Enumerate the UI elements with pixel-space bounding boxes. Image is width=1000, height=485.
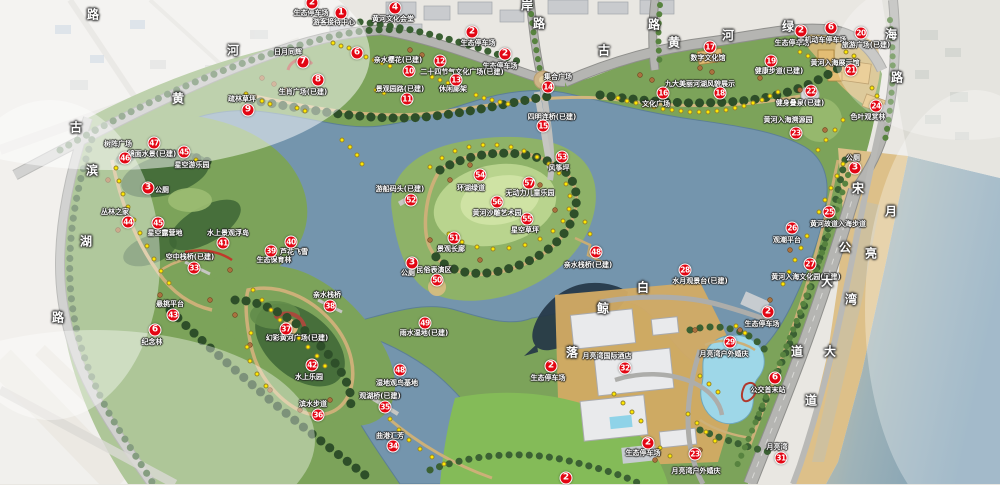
map-marker-29[interactable]: 29: [724, 336, 737, 349]
map-marker-33[interactable]: 33: [188, 262, 201, 275]
poi-dot: [833, 128, 838, 133]
map-label: 生肖广场(已建): [279, 87, 327, 97]
map-marker-3[interactable]: 3: [406, 257, 419, 270]
poi-dot: [114, 166, 119, 171]
map-marker-57[interactable]: 57: [523, 177, 536, 190]
map-marker-23[interactable]: 23: [790, 127, 803, 140]
poi-dot: [490, 98, 495, 103]
poi-dot: [639, 419, 644, 424]
poi-dot: [268, 102, 273, 107]
road-name-char: 白: [637, 279, 649, 296]
road-name-char: 河: [227, 42, 239, 59]
map-label: 生态停车场: [461, 38, 496, 48]
poi-dot: [713, 439, 718, 444]
map-marker-3[interactable]: 3: [849, 162, 862, 175]
poi-dot: [564, 182, 569, 187]
map-marker-37[interactable]: 37: [280, 323, 293, 336]
poi-dot: [823, 198, 828, 203]
map-label: 月亮湾户外婚庆: [672, 466, 721, 476]
poi-dot: [475, 245, 480, 250]
map-marker-2[interactable]: 2: [466, 26, 479, 39]
map-marker-49[interactable]: 49: [419, 317, 432, 330]
road-name-char: 亮: [865, 245, 877, 262]
map-label: 景观园路(已建): [376, 84, 424, 94]
park-master-plan-map: 生态停车场游客接待中心黄河文化会堂生态停车场生态停车场日月同辉生肖广场(已建)疏…: [0, 0, 1000, 484]
poi-dot: [743, 331, 748, 336]
poi-dot: [117, 179, 122, 184]
road-name-char: 公: [839, 239, 851, 256]
poi-dot: [360, 162, 365, 167]
poi-dot: [264, 384, 269, 389]
poi-dot: [535, 155, 540, 160]
map-marker-40[interactable]: 40: [285, 236, 298, 249]
map-annotation-overlay: 生态停车场游客接待中心黄河文化会堂生态停车场生态停车场日月同辉生肖广场(已建)疏…: [0, 0, 1000, 484]
map-label: 非机动车停车场: [798, 35, 847, 45]
map-marker-28[interactable]: 28: [679, 264, 692, 277]
poi-dot: [260, 298, 265, 303]
poi-dot: [768, 94, 773, 99]
map-marker-13[interactable]: 13: [450, 74, 463, 87]
map-marker-42[interactable]: 42: [306, 359, 319, 372]
map-label: 月亮湾: [767, 442, 788, 452]
map-marker-24[interactable]: 24: [870, 100, 883, 113]
poi-dot: [331, 41, 336, 46]
road-name-char: 海: [885, 26, 897, 43]
road-name-char: 鲸: [597, 300, 609, 317]
poi-dot: [751, 101, 756, 106]
road-name-char: 路: [87, 6, 99, 23]
map-marker-3[interactable]: 3: [142, 182, 155, 195]
map-label: 生态停车场: [745, 319, 780, 329]
poi-dot: [561, 219, 566, 224]
poi-dot: [841, 162, 846, 167]
map-marker-1[interactable]: 1: [335, 7, 348, 20]
road-name-char: 古: [70, 119, 82, 136]
map-marker-8[interactable]: 8: [312, 74, 325, 87]
poi-dot: [303, 109, 308, 114]
poi-dot: [733, 106, 738, 111]
map-marker-6[interactable]: 6: [825, 22, 838, 35]
poi-dot: [716, 390, 721, 395]
road-name-char: 古: [598, 42, 610, 59]
map-marker-2[interactable]: 2: [642, 437, 655, 450]
poi-dot: [407, 438, 412, 443]
poi-dot: [670, 108, 675, 113]
poi-dot: [245, 345, 250, 350]
map-label: 黄河文化会堂: [372, 14, 414, 24]
map-label: 公交首末站: [751, 385, 786, 395]
map-label: 亲水栈桥: [313, 290, 341, 300]
map-marker-46[interactable]: 46: [119, 152, 132, 165]
poi-dot: [817, 210, 822, 215]
poi-dot: [707, 382, 712, 387]
road-name-char: 绿: [782, 18, 794, 35]
poi-dot: [306, 345, 311, 350]
poi-dot: [567, 207, 572, 212]
map-marker-10[interactable]: 10: [403, 65, 416, 78]
road-name-char: 道: [791, 343, 803, 360]
poi-dot: [481, 143, 486, 148]
poi-dot: [523, 243, 528, 248]
poi-dot: [612, 392, 617, 397]
road-name-char: 宋: [852, 180, 864, 197]
map-marker-6[interactable]: 6: [769, 372, 782, 385]
map-label: 二十四节气文化广场(已建): [420, 67, 503, 77]
map-label: 悬挑平台: [156, 299, 184, 309]
map-label: 星空游乐园: [175, 160, 210, 170]
map-marker-45[interactable]: 45: [178, 146, 191, 159]
map-marker-20[interactable]: 20: [855, 27, 868, 40]
poi-dot: [742, 104, 747, 109]
map-label: 健康步道(已建): [755, 66, 803, 76]
poi-dot: [121, 192, 126, 197]
map-label: 黄河沙雕艺术园: [473, 208, 522, 218]
poi-dot: [698, 374, 703, 379]
poi-dot: [364, 55, 369, 60]
poi-dot: [734, 324, 739, 329]
poi-dot: [159, 269, 164, 274]
map-marker-32[interactable]: 32: [619, 362, 632, 375]
map-marker-6[interactable]: 6: [351, 47, 364, 60]
poi-dot: [482, 96, 487, 101]
map-label: 树阵广场: [104, 139, 132, 149]
map-marker-27[interactable]: 27: [804, 258, 817, 271]
map-marker-55[interactable]: 55: [521, 213, 534, 226]
map-label: 幻彩黄河广场(已建): [266, 333, 328, 343]
poi-dot: [249, 331, 254, 336]
poi-dot: [315, 354, 320, 359]
map-label: 星空露营地: [148, 228, 183, 238]
poi-dot: [260, 99, 265, 104]
map-label: 星空草坪: [511, 225, 539, 235]
map-marker-52[interactable]: 52: [405, 194, 418, 207]
poi-dot: [498, 100, 503, 105]
poi-dot: [506, 102, 511, 107]
map-label: 风筝坪: [549, 163, 570, 173]
map-label: 空中栈桥(已建): [166, 252, 214, 262]
road-name-char: 黄: [668, 34, 680, 51]
map-marker-4[interactable]: 4: [389, 2, 402, 15]
poi-dot: [491, 247, 496, 252]
map-label: 观潮平台: [773, 235, 801, 245]
map-marker-18[interactable]: 18: [714, 87, 727, 100]
map-marker-6[interactable]: 6: [149, 324, 162, 337]
map-label: 疏林草坪: [228, 94, 256, 104]
map-marker-51[interactable]: 51: [448, 232, 461, 245]
poi-dot: [474, 93, 479, 98]
poi-dot: [495, 143, 500, 148]
poi-dot: [844, 50, 849, 55]
map-marker-45[interactable]: 45: [152, 217, 165, 230]
map-marker-38[interactable]: 38: [324, 300, 337, 313]
map-label: 景观长廊: [437, 244, 465, 254]
map-label: 公厕: [155, 185, 169, 195]
poi-dot: [438, 78, 443, 83]
map-label: 水上景观浮岛: [207, 228, 249, 238]
poi-dot: [428, 165, 433, 170]
map-marker-12[interactable]: 12: [434, 55, 447, 68]
map-marker-14[interactable]: 14: [542, 81, 555, 94]
poi-dot: [278, 318, 283, 323]
map-label: 水上乐园: [295, 372, 323, 382]
map-marker-2[interactable]: 2: [795, 25, 808, 38]
poi-dot: [776, 90, 781, 95]
map-marker-19[interactable]: 19: [765, 55, 778, 68]
poi-dot: [697, 110, 702, 115]
poi-dot: [715, 109, 720, 114]
poi-dot: [269, 308, 274, 313]
road-name-char: 湖: [80, 233, 92, 250]
poi-dot: [509, 145, 514, 150]
poi-dot: [695, 421, 700, 426]
map-label: 文化广场: [642, 99, 670, 109]
map-marker-17[interactable]: 17: [704, 41, 717, 54]
map-marker-56[interactable]: 56: [491, 196, 504, 209]
road-name-char: 路: [648, 16, 660, 33]
poi-dot: [522, 149, 527, 154]
map-marker-50[interactable]: 50: [431, 274, 444, 287]
road-name-char: 滨: [86, 162, 98, 179]
road-name-char: 路: [52, 309, 64, 326]
poi-dot: [824, 138, 829, 143]
poi-dot: [348, 145, 353, 150]
map-label: 游客接待中心: [313, 17, 355, 27]
map-marker-47[interactable]: 47: [148, 137, 161, 150]
poi-dot: [706, 110, 711, 115]
poi-dot: [568, 194, 573, 199]
poi-dot: [588, 232, 593, 237]
poi-dot: [248, 359, 253, 364]
map-marker-22[interactable]: 22: [805, 85, 818, 98]
poi-dot: [816, 148, 821, 153]
map-label: 生态停车场: [531, 373, 566, 383]
map-marker-7[interactable]: 7: [297, 56, 310, 69]
poi-dot: [583, 220, 588, 225]
map-marker-41[interactable]: 41: [217, 237, 230, 250]
map-label: 亲水栈桥(已建): [564, 260, 612, 270]
poi-dot: [634, 101, 639, 106]
poi-dot: [340, 138, 345, 143]
poi-dot: [781, 282, 786, 287]
map-label: 月亮湾户外婚庆: [700, 349, 749, 359]
map-marker-9[interactable]: 9: [242, 104, 255, 117]
map-marker-2[interactable]: 2: [545, 360, 558, 373]
map-label: 数字文化馆: [691, 53, 726, 63]
road-name-char: 河: [722, 27, 734, 44]
map-marker-39[interactable]: 39: [265, 245, 278, 258]
map-marker-34[interactable]: 34: [387, 440, 400, 453]
road-name-char: 路: [533, 15, 545, 32]
road-name-char: 道: [805, 392, 817, 409]
map-marker-43[interactable]: 43: [167, 309, 180, 322]
map-marker-48[interactable]: 48: [590, 246, 603, 259]
map-marker-26[interactable]: 26: [786, 222, 799, 235]
poi-dot: [870, 86, 875, 91]
map-marker-16[interactable]: 16: [657, 87, 670, 100]
poi-dot: [167, 281, 172, 286]
poi-dot: [625, 99, 630, 104]
poi-dot: [760, 98, 765, 103]
poi-dot: [339, 44, 344, 49]
poi-dot: [388, 417, 393, 422]
map-marker-11[interactable]: 11: [401, 93, 414, 106]
road-name-char: 路: [891, 69, 903, 86]
map-label: 色叶观赏林: [851, 112, 886, 122]
poi-dot: [453, 149, 458, 154]
map-label: 健身叠泉(已建): [776, 98, 824, 108]
poi-dot: [829, 186, 834, 191]
poi-dot: [668, 454, 673, 459]
poi-dot: [679, 109, 684, 114]
map-label: 月亮湾国际酒店: [583, 351, 632, 361]
map-label: 游船码头(已建): [376, 184, 424, 194]
map-label: 湿地观鸟基地: [376, 378, 418, 388]
poi-dot: [145, 244, 150, 249]
map-label: 亲水樱花(已建): [374, 55, 422, 65]
poi-dot: [875, 94, 880, 99]
map-label: 观湖桥(已建): [359, 391, 400, 401]
poi-dot: [805, 234, 810, 239]
poi-dot: [621, 401, 626, 406]
map-label: 镜面水景(已建): [128, 149, 176, 159]
road-name-char: 落: [566, 344, 578, 361]
poi-dot: [616, 96, 621, 101]
road-name-char: 大: [821, 273, 833, 290]
poi-dot: [251, 288, 256, 293]
poi-dot: [255, 372, 260, 377]
poi-dot: [724, 108, 729, 113]
poi-dot: [418, 447, 423, 452]
map-marker-54[interactable]: 54: [474, 169, 487, 182]
poi-dot: [442, 462, 447, 467]
poi-dot: [507, 246, 512, 251]
map-label: 纪念林: [142, 337, 163, 347]
map-marker-2[interactable]: 2: [762, 306, 775, 319]
map-marker-15[interactable]: 15: [537, 120, 550, 133]
poi-dot: [793, 258, 798, 263]
poi-dot: [688, 110, 693, 115]
road-name-char: 黄: [172, 90, 184, 107]
map-label: 水月观景台(已建): [672, 276, 727, 286]
map-marker-48[interactable]: 48: [394, 364, 407, 377]
map-marker-44[interactable]: 44: [122, 216, 135, 229]
map-label: 生态停车场: [626, 448, 661, 458]
map-marker-36[interactable]: 36: [312, 409, 325, 422]
map-marker-25[interactable]: 25: [823, 206, 836, 219]
map-marker-23[interactable]: 23: [689, 448, 702, 461]
map-label: 无动力儿童乐园: [506, 188, 555, 198]
map-label: 公厕: [401, 268, 415, 278]
poi-dot: [430, 455, 435, 460]
map-label: 旅游广场(已建): [842, 40, 890, 50]
poi-dot: [835, 174, 840, 179]
poi-dot: [355, 153, 360, 158]
poi-dot: [799, 246, 804, 251]
road-name-char: 月: [885, 203, 897, 220]
map-marker-2[interactable]: 2: [499, 48, 512, 61]
poi-dot: [138, 231, 143, 236]
poi-dot: [323, 364, 328, 369]
map-marker-31[interactable]: 31: [775, 452, 788, 465]
map-label: 日月同辉: [274, 47, 302, 57]
poi-dot: [467, 145, 472, 150]
poi-dot: [798, 50, 803, 55]
map-label: 环湖绿道: [457, 183, 485, 193]
poi-dot: [841, 118, 846, 123]
poi-dot: [152, 257, 157, 262]
map-label: 滨水步道: [299, 399, 327, 409]
map-label: 黄河入海溯源园: [764, 115, 813, 125]
map-label: 黄河故道入海步道: [810, 219, 866, 229]
poi-dot: [440, 156, 445, 161]
map-marker-21[interactable]: 21: [845, 64, 858, 77]
map-marker-35[interactable]: 35: [379, 401, 392, 414]
map-marker-53[interactable]: 53: [556, 151, 569, 164]
road-name-char: 湾: [845, 291, 857, 308]
map-marker-2[interactable]: 2: [560, 472, 573, 485]
poi-dot: [538, 237, 543, 242]
poi-dot: [704, 430, 709, 435]
poi-dot: [551, 229, 556, 234]
road-name-char: 大: [824, 343, 836, 360]
poi-dot: [630, 410, 635, 415]
road-name-char: 岸: [521, 0, 533, 14]
poi-dot: [295, 106, 300, 111]
map-label: 雨水湿地(已建): [400, 328, 448, 338]
map-label: 四明连桥(已建): [528, 112, 576, 122]
poi-dot: [686, 412, 691, 417]
